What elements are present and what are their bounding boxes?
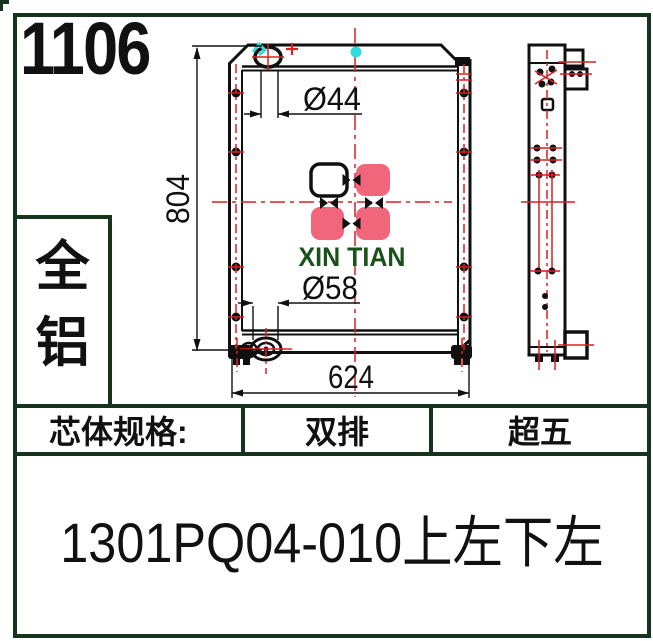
top-bracket-2: [565, 69, 587, 89]
radiator-drawing-page: 1106 全 铝: [0, 0, 653, 641]
spec-grade-cell: 超五: [433, 408, 647, 452]
dim-height-label: 804: [160, 174, 196, 224]
cyan-dot-icon: [351, 47, 362, 58]
technical-drawing: Ø44 804 Ø58: [0, 0, 653, 404]
logo-square-pink-bl: [311, 207, 344, 240]
dimension-height: 804: [160, 46, 262, 351]
top-bolt-cluster: [535, 66, 557, 88]
dim-width-label: 624: [328, 359, 374, 395]
brand-logo: XIN TIAN: [299, 164, 406, 272]
spec-rows-cell: 双排: [245, 408, 433, 452]
bracket-notch: [455, 57, 470, 66]
lower-bolt-cluster: [530, 268, 560, 311]
mid-bolt-cluster: [530, 145, 562, 273]
top-bracket-1: [565, 50, 583, 66]
logo-square-white-tl: [311, 164, 347, 196]
logo-square-pink-tr: [356, 164, 390, 196]
dimension-top-diameter: Ø44: [244, 70, 362, 118]
side-view-drawing: [521, 45, 596, 370]
front-view-drawing: Ø44 804 Ø58: [160, 28, 472, 398]
dim-top-diameter-label: Ø44: [303, 81, 361, 117]
logo-text: XIN TIAN: [299, 242, 406, 272]
dimension-width: 624: [232, 357, 469, 398]
logo-square-pink-br: [356, 207, 390, 240]
dim-bottom-diameter-label: Ø58: [302, 270, 358, 306]
part-number-text: 1301PQ04-010上左下左: [45, 512, 619, 574]
spec-label-cell: 芯体规格:: [17, 408, 245, 452]
spec-table: 芯体规格: 双排 超五: [13, 404, 651, 456]
